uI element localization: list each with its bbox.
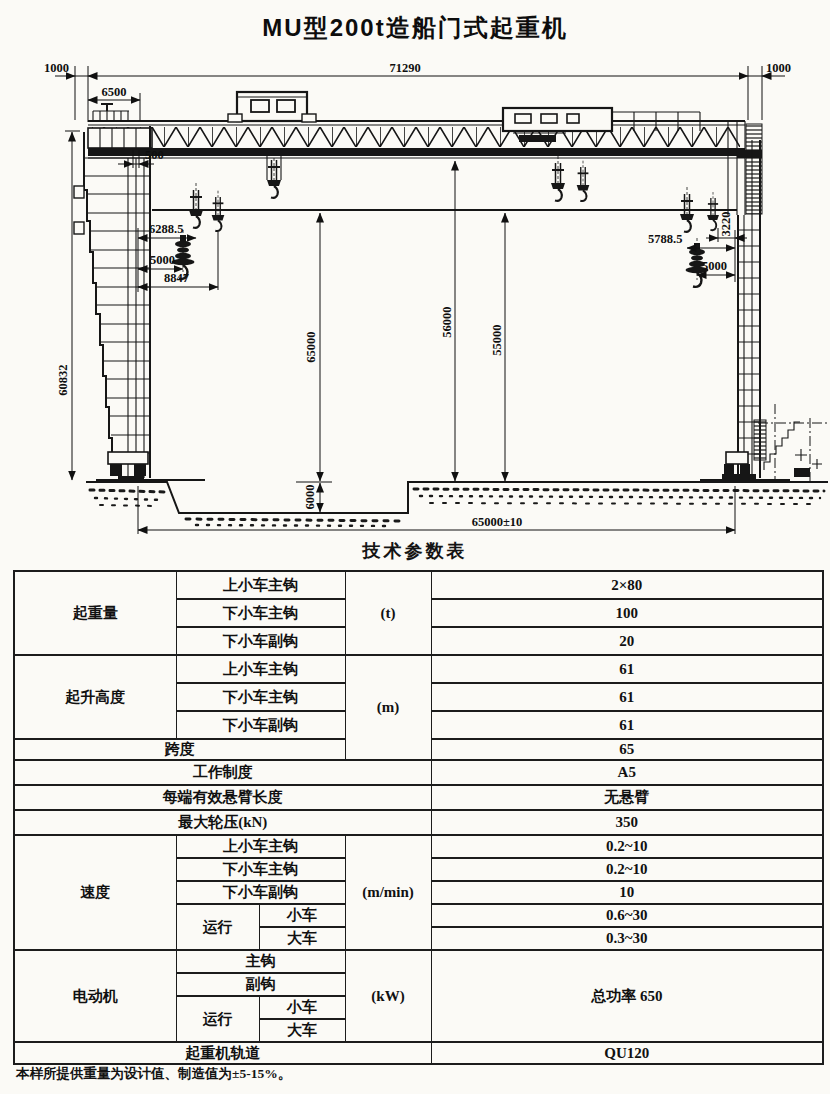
dim-pit-depth: 6000 bbox=[303, 485, 317, 510]
param-label: 起重机轨道 bbox=[14, 1042, 431, 1064]
param-item: 下小车主钩 bbox=[176, 858, 345, 881]
ground-and-pit bbox=[86, 482, 828, 526]
dim-total-span: 71290 bbox=[389, 61, 420, 75]
param-value: QU120 bbox=[431, 1042, 823, 1064]
param-value: 0.6~30 bbox=[431, 904, 823, 927]
table-row: 起升高度 上小车主钩 (m) 61 bbox=[14, 655, 823, 683]
param-value: 350 bbox=[431, 810, 823, 835]
param-item: 大车 bbox=[259, 1019, 345, 1042]
left-leg bbox=[74, 126, 205, 482]
table-row: 起重量 上小车主钩 (t) 2×80 bbox=[14, 571, 823, 599]
param-value: 100 bbox=[431, 599, 823, 627]
dim-left-hook-2: 5000 bbox=[150, 253, 175, 267]
right-leg bbox=[700, 140, 828, 482]
param-item: 上小车主钩 bbox=[176, 835, 345, 858]
dim-left-leg-height: 60832 bbox=[56, 364, 70, 395]
table-title: 技术参数表 bbox=[0, 539, 830, 563]
dim-left-overhang: 6500 bbox=[102, 85, 127, 99]
dim-right-hook-3: 5000 bbox=[702, 259, 727, 273]
param-value: 10 bbox=[431, 881, 823, 904]
param-label: 每端有效悬臂长度 bbox=[14, 785, 431, 810]
param-value: 2×80 bbox=[431, 571, 823, 599]
param-label: 跨度 bbox=[14, 739, 345, 760]
param-item: 运行 bbox=[176, 904, 259, 950]
param-label: 工作制度 bbox=[14, 760, 431, 785]
param-label: 最大轮压(kN) bbox=[14, 810, 431, 835]
param-value: 20 bbox=[431, 627, 823, 655]
param-value: 0.3~30 bbox=[431, 927, 823, 950]
table-row: 电动机 主钩 (kW) 总功率 650 bbox=[14, 950, 823, 973]
param-label: 起升高度 bbox=[14, 655, 176, 739]
table-row: 工作制度 A5 bbox=[14, 760, 823, 785]
datasheet-page: MU型200t造船门式起重机 bbox=[0, 0, 830, 1094]
main-girder-truss bbox=[88, 104, 762, 215]
param-label: 电动机 bbox=[14, 950, 176, 1042]
param-value: A5 bbox=[431, 760, 823, 785]
param-item: 大车 bbox=[259, 927, 345, 950]
param-value: 65 bbox=[431, 739, 823, 760]
table-row: 速度 上小车主钩 (m/min) 0.2~10 bbox=[14, 835, 823, 858]
dim-height-girder: 56000 bbox=[440, 306, 454, 337]
dim-height-main: 65000 bbox=[304, 331, 318, 362]
param-value: 0.2~10 bbox=[431, 858, 823, 881]
param-item: 下小车副钩 bbox=[176, 627, 345, 655]
param-unit: (t) bbox=[345, 571, 431, 655]
param-label: 速度 bbox=[14, 835, 176, 950]
dim-top-right-gauge: 1000 bbox=[766, 61, 791, 75]
dim-height-lower: 55000 bbox=[490, 324, 504, 355]
param-item: 主钩 bbox=[176, 950, 345, 973]
dim-right-hook-2: 3220 bbox=[719, 212, 733, 237]
dim-left-hook-3: 8847 bbox=[164, 271, 189, 285]
dim-left-hook-1: 6288.5 bbox=[149, 222, 183, 236]
param-item: 小车 bbox=[259, 904, 345, 927]
param-item: 运行 bbox=[176, 996, 259, 1042]
param-item: 下小车副钩 bbox=[176, 711, 345, 739]
param-value: 61 bbox=[431, 655, 823, 683]
param-item: 下小车主钩 bbox=[176, 599, 345, 627]
param-item: 下小车主钩 bbox=[176, 683, 345, 711]
param-value: 总功率 650 bbox=[431, 950, 823, 1042]
param-item: 上小车主钩 bbox=[176, 655, 345, 683]
param-value: 61 bbox=[431, 683, 823, 711]
dim-right-hook-1: 5788.5 bbox=[648, 232, 682, 246]
footnote: 本样所提供重量为设计值、制造值为±5-15%。 bbox=[16, 1065, 291, 1083]
dim-leg-offset: 500 bbox=[145, 148, 164, 162]
param-label: 起重量 bbox=[14, 571, 176, 655]
param-item: 下小车副钩 bbox=[176, 881, 345, 904]
dim-rail-span: 65000±10 bbox=[472, 515, 523, 529]
param-item: 副钩 bbox=[176, 973, 345, 996]
table-row: 起重机轨道 QU120 bbox=[14, 1042, 823, 1064]
param-unit: (m) bbox=[345, 655, 431, 760]
table-row: 最大轮压(kN) 350 bbox=[14, 810, 823, 835]
param-value: 61 bbox=[431, 711, 823, 739]
param-item: 上小车主钩 bbox=[176, 571, 345, 599]
parameters-table: 起重量 上小车主钩 (t) 2×80 下小车主钩 100 下小车副钩 20 起升… bbox=[13, 570, 824, 1065]
param-item: 小车 bbox=[259, 996, 345, 1019]
crane-technical-drawing: 1000 71290 1000 6500 500 6288.5 5000 884… bbox=[0, 0, 830, 556]
param-unit: (m/min) bbox=[345, 835, 431, 950]
dim-top-left-gauge: 1000 bbox=[44, 61, 69, 75]
param-value: 无悬臂 bbox=[431, 785, 823, 810]
hoisting-hooks bbox=[172, 156, 719, 287]
table-row: 每端有效悬臂长度 无悬臂 bbox=[14, 785, 823, 810]
param-value: 0.2~10 bbox=[431, 835, 823, 858]
param-unit: (kW) bbox=[345, 950, 431, 1042]
